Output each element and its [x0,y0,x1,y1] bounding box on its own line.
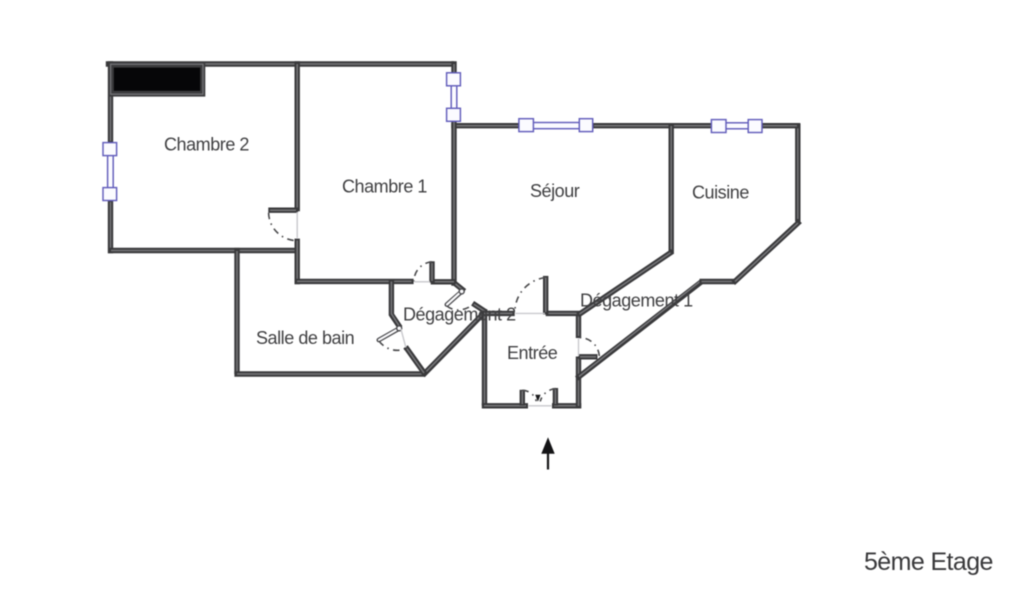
svg-text:5ème Etage: 5ème Etage [864,548,993,576]
svg-text:Cuisine: Cuisine [692,183,749,203]
svg-text:Entrée: Entrée [507,343,558,363]
svg-text:Dégagement 2: Dégagement 2 [403,305,516,325]
svg-text:Dégagement 1: Dégagement 1 [580,291,693,311]
svg-text:Séjour: Séjour [530,181,580,201]
svg-text:Chambre 1: Chambre 1 [342,177,427,197]
svg-text:Salle de bain: Salle de bain [256,328,354,348]
svg-text:Chambre 2: Chambre 2 [164,135,249,155]
